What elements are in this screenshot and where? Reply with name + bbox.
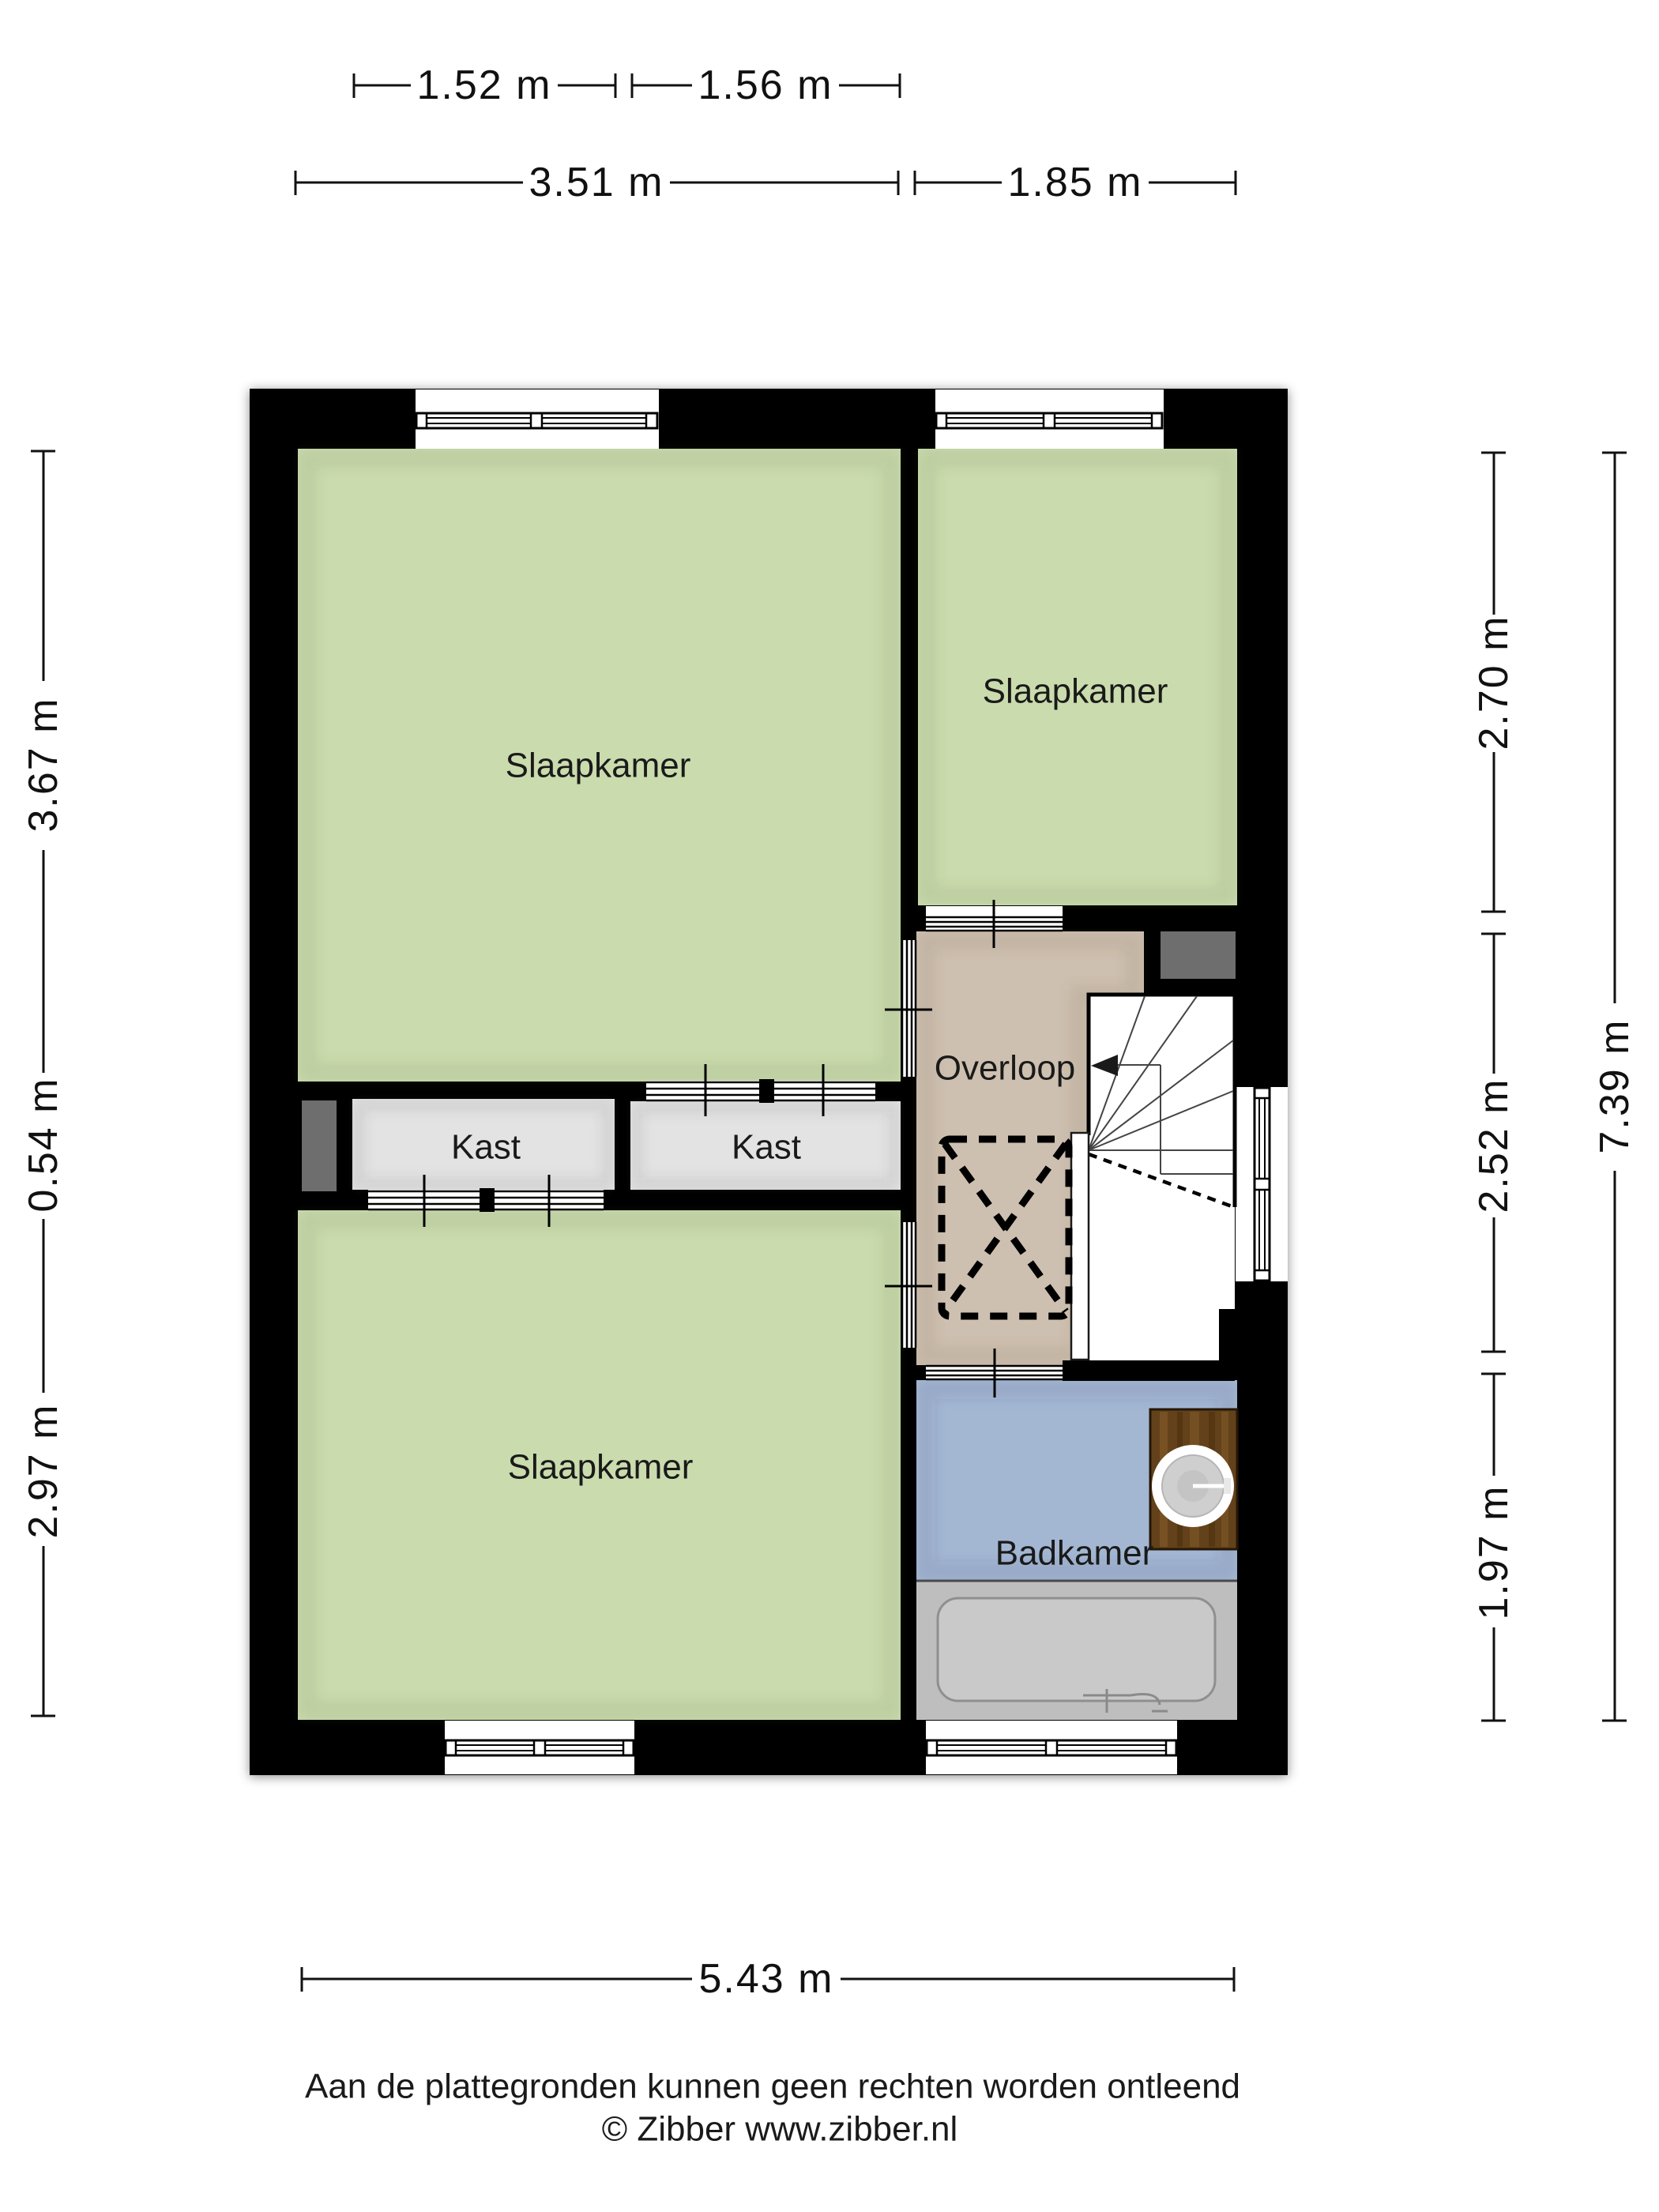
svg-text:3.67 m: 3.67 m: [21, 698, 66, 833]
svg-text:Kast: Kast: [732, 1128, 801, 1167]
svg-text:2.52 m: 2.52 m: [1471, 1078, 1517, 1213]
svg-text:© Zibber www.zibber.nl: © Zibber www.zibber.nl: [602, 2110, 958, 2149]
svg-text:1.85 m: 1.85 m: [1008, 160, 1143, 205]
svg-text:Slaapkamer: Slaapkamer: [506, 747, 691, 785]
svg-text:Badkamer: Badkamer: [995, 1534, 1154, 1573]
svg-text:3.51 m: 3.51 m: [529, 160, 664, 205]
svg-text:1.97 m: 1.97 m: [1471, 1485, 1517, 1620]
svg-text:0.54 m: 0.54 m: [21, 1078, 66, 1213]
svg-text:Slaapkamer: Slaapkamer: [983, 672, 1168, 711]
svg-text:2.70 m: 2.70 m: [1471, 615, 1517, 750]
svg-text:Aan de plattegronden kunnen ge: Aan de plattegronden kunnen geen rechten…: [305, 2067, 1240, 2106]
svg-text:5.43 m: 5.43 m: [699, 1956, 834, 2002]
svg-text:Kast: Kast: [451, 1128, 521, 1167]
svg-text:7.39 m: 7.39 m: [1592, 1019, 1638, 1154]
svg-text:Overloop: Overloop: [935, 1049, 1076, 1088]
svg-text:2.97 m: 2.97 m: [21, 1404, 66, 1539]
svg-text:Slaapkamer: Slaapkamer: [508, 1448, 694, 1487]
svg-text:1.52 m: 1.52 m: [417, 62, 552, 108]
svg-text:1.56 m: 1.56 m: [698, 62, 833, 108]
